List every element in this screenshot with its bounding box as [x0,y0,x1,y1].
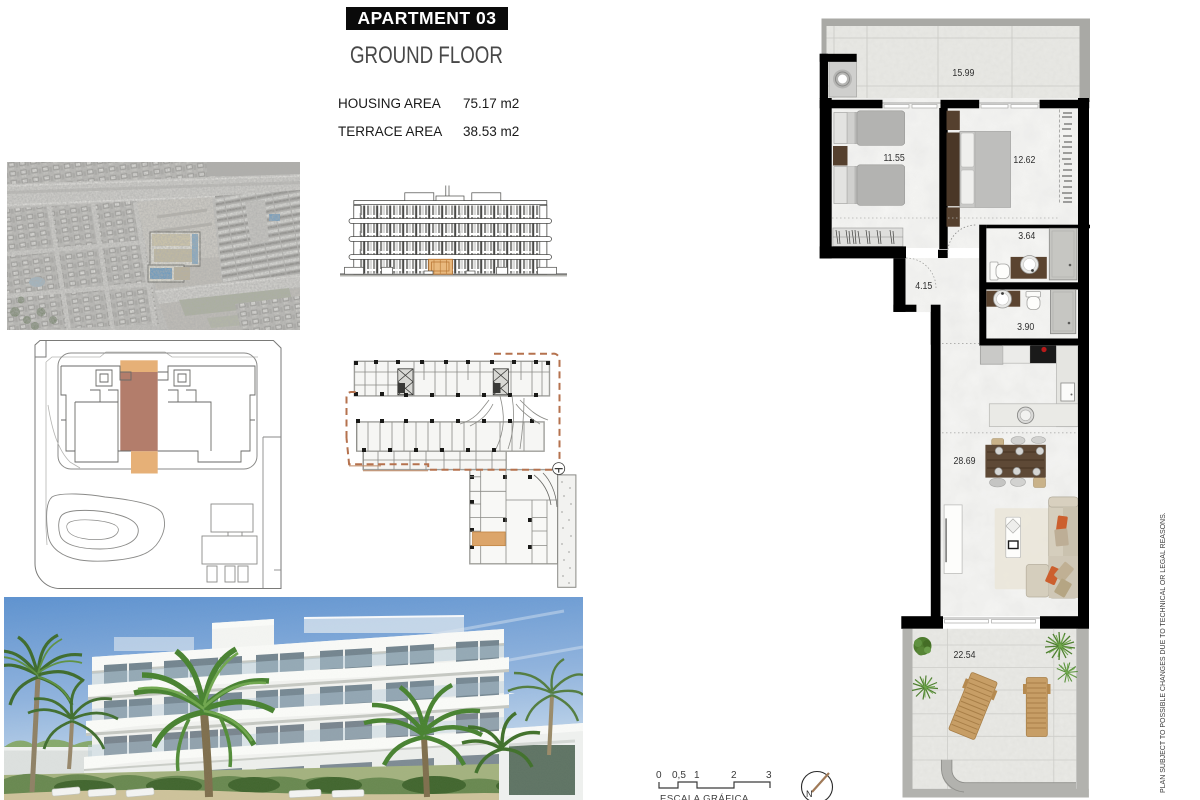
svg-text:28.69: 28.69 [954,454,976,466]
svg-text:3: 3 [766,770,772,781]
svg-text:ESCALA GRÁFICA: ESCALA GRÁFICA [660,794,749,800]
svg-text:0,5: 0,5 [672,770,686,781]
svg-text:2: 2 [731,770,737,781]
svg-text:12.62: 12.62 [1013,153,1035,165]
svg-text:15.99: 15.99 [952,66,974,78]
svg-text:0: 0 [656,770,662,781]
svg-text:22.54: 22.54 [954,648,976,660]
svg-text:11.55: 11.55 [883,151,904,163]
svg-text:1: 1 [694,770,700,781]
svg-text:3.64: 3.64 [1018,229,1035,241]
svg-text:4.15: 4.15 [915,279,932,291]
svg-text:3.90: 3.90 [1017,320,1034,332]
